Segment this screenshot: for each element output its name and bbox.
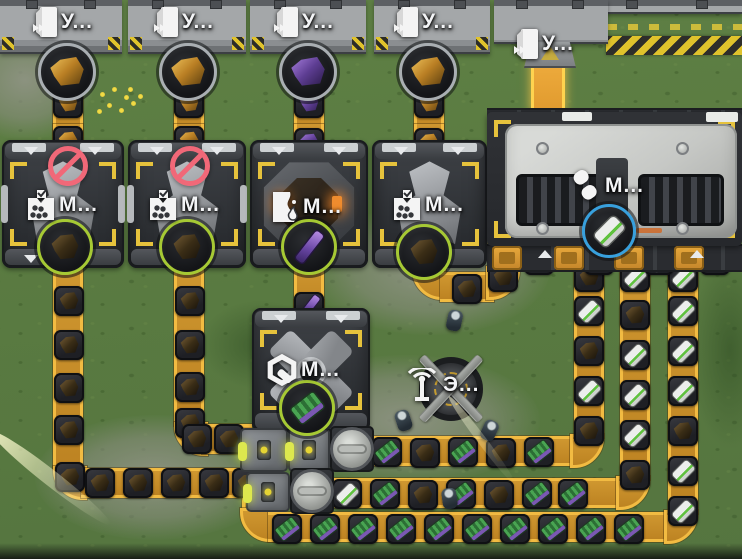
- circuit-board-icon: [426, 517, 451, 541]
- belt-item-tile[interactable]: [620, 340, 650, 370]
- port-marker: [562, 112, 592, 121]
- belt-loader[interactable]: [492, 246, 522, 270]
- port-label-text: У...: [61, 10, 93, 34]
- machine-side-slot: [127, 185, 134, 223]
- hazard-mark: [2, 37, 14, 50]
- chevron-down-icon: [332, 147, 346, 155]
- hazard-mark: [130, 37, 142, 50]
- bolt: [536, 222, 549, 235]
- port-label-text: У...: [422, 10, 454, 34]
- wall-segment: [596, 0, 742, 14]
- dark-ore-icon: [408, 236, 440, 268]
- corner-accent: [343, 162, 360, 179]
- belt-item-tile[interactable]: [668, 336, 698, 366]
- belt-item-tile[interactable]: [500, 514, 530, 544]
- flower: [131, 101, 136, 106]
- belt-item-tile[interactable]: [161, 468, 191, 498]
- belt-item-tile[interactable]: [199, 468, 229, 498]
- port-ore-badge[interactable]: [159, 43, 217, 101]
- chevron-down-icon: [210, 147, 224, 155]
- flower: [107, 103, 112, 108]
- corner-accent: [258, 229, 275, 246]
- belt-item-tile[interactable]: [524, 437, 554, 467]
- machine-label[interactable]: М...: [568, 170, 644, 202]
- belt-item-tile[interactable]: [620, 380, 650, 410]
- hazard-mark: [352, 37, 364, 50]
- corner-accent: [10, 229, 27, 246]
- battery-icon: [623, 343, 647, 367]
- chevron-down-icon: [394, 147, 408, 155]
- belt-item-tile[interactable]: [408, 480, 438, 510]
- flower: [138, 94, 143, 99]
- belt-item-tile[interactable]: [54, 415, 84, 445]
- belt-item-tile[interactable]: [668, 416, 698, 446]
- machine-label[interactable]: М...: [392, 188, 464, 222]
- battery-icon: [671, 459, 695, 483]
- dark-ore-icon: [456, 278, 478, 300]
- circuit-board-icon: [388, 517, 413, 541]
- device-light: [265, 489, 272, 496]
- port-label[interactable]: У...: [513, 28, 574, 60]
- corner-accent: [380, 162, 397, 179]
- belt-loader[interactable]: [554, 246, 584, 270]
- belt-item-tile[interactable]: [538, 514, 568, 544]
- machine-side-slot: [240, 185, 247, 223]
- port-label[interactable]: У...: [393, 6, 454, 38]
- circuit-board-icon: [560, 482, 585, 506]
- machine-label[interactable]: М...: [26, 188, 98, 222]
- hazard-mark: [232, 37, 244, 50]
- assembler-icon: [266, 354, 298, 386]
- belt-item-tile[interactable]: [486, 438, 516, 468]
- chevron-down-icon: [150, 147, 164, 155]
- flower: [97, 109, 102, 114]
- machine-side-slot: [1, 185, 8, 223]
- belt-item-tile[interactable]: [576, 514, 606, 544]
- flower: [124, 95, 129, 100]
- container-arrow-icon: [393, 6, 419, 38]
- chevron-down-icon: [272, 147, 286, 155]
- hazard-mark: [476, 37, 488, 50]
- dark-ore-icon: [127, 472, 149, 494]
- machine-label-text: М...: [303, 195, 342, 219]
- chevron-down-icon: [88, 147, 102, 155]
- port-label[interactable]: У...: [273, 6, 334, 38]
- corner-accent: [462, 229, 479, 246]
- belt-item-tile[interactable]: [175, 286, 205, 316]
- purple-ore-icon: [289, 55, 327, 89]
- circuit-board-icon: [374, 440, 399, 464]
- belt-item-tile[interactable]: [424, 514, 454, 544]
- chevron-up-icon: [690, 250, 704, 258]
- flower: [100, 92, 105, 97]
- corner-accent: [345, 330, 362, 347]
- corner-accent: [380, 229, 397, 246]
- machine-output-badge[interactable]: [396, 224, 452, 280]
- belt-item-tile[interactable]: [614, 514, 644, 544]
- wall-pillar: [696, 0, 708, 9]
- belt-item-tile[interactable]: [558, 479, 588, 509]
- corner-accent: [136, 229, 153, 246]
- wall-pillar: [572, 0, 584, 9]
- port-ore-badge[interactable]: [279, 43, 337, 101]
- device-light: [306, 447, 313, 454]
- wall-pillar: [454, 0, 466, 9]
- rotary-device[interactable]: [330, 426, 374, 472]
- belt-item-tile[interactable]: [574, 376, 604, 406]
- port-label-text: У...: [182, 10, 214, 34]
- battery-icon: [671, 499, 695, 523]
- corner-accent: [258, 162, 275, 179]
- machine-label-text: М...: [59, 193, 98, 217]
- belt-item-tile[interactable]: [620, 420, 650, 450]
- dark-ore-icon: [179, 376, 201, 398]
- belt-item-tile[interactable]: [620, 460, 650, 490]
- battery-icon: [671, 379, 695, 403]
- port-label[interactable]: У...: [153, 6, 214, 38]
- glow-slot: [238, 442, 247, 461]
- belt-item-tile[interactable]: [55, 462, 85, 492]
- dark-ore-icon: [624, 464, 646, 486]
- port-label[interactable]: У...: [32, 6, 93, 38]
- dark-ore-icon: [59, 466, 81, 488]
- corner-accent: [10, 162, 27, 179]
- power-pole-label-text: Э...: [443, 373, 479, 397]
- belt-item-tile[interactable]: [182, 424, 212, 454]
- mill-marking: [636, 228, 662, 233]
- dark-ore-icon: [58, 290, 80, 312]
- circuit-board-icon: [578, 517, 603, 541]
- belt-item-tile[interactable]: [310, 514, 340, 544]
- dark-ore-icon: [578, 420, 600, 442]
- belt-item-tile[interactable]: [54, 286, 84, 316]
- belt-item-tile[interactable]: [54, 373, 84, 403]
- no-power-icon: [170, 146, 210, 186]
- purple-rod-icon: [294, 230, 323, 263]
- no-power-icon: [48, 146, 88, 186]
- corner-accent: [99, 162, 116, 179]
- splitter-device[interactable]: [240, 428, 288, 472]
- circuit-board-icon: [526, 440, 551, 464]
- flower: [119, 108, 124, 113]
- glow-slot: [285, 442, 294, 461]
- belt-item-tile[interactable]: [484, 480, 514, 510]
- belt-item-tile[interactable]: [332, 479, 362, 509]
- corner-accent: [260, 393, 277, 410]
- dark-ore-icon: [58, 334, 80, 356]
- dark-ore-icon: [58, 419, 80, 441]
- belt-item-tile[interactable]: [348, 514, 378, 544]
- hazard-mark: [252, 37, 264, 50]
- glow-slot: [243, 484, 252, 503]
- dark-ore-icon: [488, 484, 510, 506]
- corner-accent: [99, 229, 116, 246]
- circuit-board-icon: [464, 517, 489, 541]
- flower: [128, 87, 133, 92]
- dark-ore-icon: [218, 428, 240, 450]
- belt-item-tile[interactable]: [175, 372, 205, 402]
- roller-conveyor: [638, 174, 724, 226]
- battery-icon: [577, 379, 601, 403]
- belt-item-tile[interactable]: [54, 330, 84, 360]
- dark-ore-icon: [179, 334, 201, 356]
- hazard-stripe-band: [606, 36, 742, 55]
- belt-item-tile[interactable]: [620, 300, 650, 330]
- dark-ore-icon: [49, 231, 81, 263]
- chevron-down-icon: [334, 315, 348, 323]
- battery-icon: [671, 339, 695, 363]
- corner-accent: [136, 162, 153, 179]
- belt-item-tile[interactable]: [522, 479, 552, 509]
- belt-item-tile[interactable]: [123, 468, 153, 498]
- chevron-down-icon: [274, 315, 288, 323]
- dark-ore-icon: [179, 290, 201, 312]
- crusher-icon: [392, 188, 422, 222]
- circuit-board-icon: [502, 517, 527, 541]
- bolt: [676, 222, 689, 235]
- dark-ore-icon: [171, 231, 203, 263]
- dark-ore-icon: [89, 472, 111, 494]
- machine-label-text: М...: [605, 174, 644, 198]
- rollers-icon: [568, 170, 602, 202]
- dark-ore-icon: [578, 340, 600, 362]
- dashed-marking: [586, 24, 742, 30]
- circuit-board-icon: [540, 517, 565, 541]
- wall-pillar: [516, 0, 528, 9]
- battery-icon: [671, 299, 695, 323]
- smelter-icon: [270, 190, 300, 224]
- splitter-device[interactable]: [246, 472, 290, 512]
- corner-accent: [221, 229, 238, 246]
- gold-ore-icon: [409, 55, 447, 89]
- worker-unit[interactable]: [441, 487, 459, 510]
- dark-ore-icon: [490, 442, 512, 464]
- battery-icon: [623, 423, 647, 447]
- gold-ore-icon: [48, 55, 86, 89]
- corner-accent: [221, 162, 238, 179]
- dark-ore-icon: [186, 428, 208, 450]
- belt-item-tile[interactable]: [370, 479, 400, 509]
- dark-ore-icon: [412, 484, 434, 506]
- power-pole-label[interactable]: Э...: [404, 368, 479, 402]
- hazard-mark: [108, 37, 120, 50]
- machine-label[interactable]: М...: [270, 190, 342, 224]
- circuit-board-icon: [274, 517, 299, 541]
- bolt: [676, 142, 689, 155]
- gold-ore-icon: [169, 55, 207, 89]
- circuit-board-icon: [524, 482, 549, 506]
- belt-item-tile[interactable]: [272, 514, 302, 544]
- container-arrow-icon: [32, 6, 58, 38]
- dark-ore-icon: [165, 472, 187, 494]
- belt-item-tile[interactable]: [448, 437, 478, 467]
- hazard-mark: [376, 37, 388, 50]
- machine-label-text: М...: [425, 193, 464, 217]
- belt-item-tile[interactable]: [452, 274, 482, 304]
- dark-ore-icon: [414, 442, 436, 464]
- dark-ore-icon: [624, 304, 646, 326]
- machine-output-badge[interactable]: [279, 380, 335, 436]
- port-ore-badge[interactable]: [38, 43, 96, 101]
- machine-output-badge[interactable]: [159, 219, 215, 275]
- circuit-board-icon: [372, 482, 397, 506]
- screen-vignette: [0, 543, 742, 559]
- crusher-icon: [148, 188, 178, 222]
- chevron-down-icon: [24, 255, 38, 263]
- circuit-board-icon: [350, 517, 375, 541]
- antenna-icon: [404, 368, 440, 402]
- chevron-down-icon: [451, 147, 465, 155]
- belt-item-tile[interactable]: [175, 330, 205, 360]
- machine-label[interactable]: М...: [148, 188, 220, 222]
- flower: [112, 87, 117, 92]
- container-arrow-icon: [273, 6, 299, 38]
- machine-output-badge[interactable]: [37, 219, 93, 275]
- crusher-icon: [26, 188, 56, 222]
- chevron-down-icon: [24, 147, 38, 155]
- dark-ore-icon: [203, 472, 225, 494]
- belt-item-tile[interactable]: [668, 296, 698, 326]
- machine-side-slot: [118, 185, 125, 223]
- wall-pillar: [626, 0, 638, 9]
- circuit-board-icon: [450, 440, 475, 464]
- belt-item-tile[interactable]: [668, 456, 698, 486]
- battery-icon: [623, 383, 647, 407]
- game-viewport: У... У... У... У... У...: [0, 0, 742, 559]
- corner-accent: [260, 330, 277, 347]
- belt-item-tile[interactable]: [574, 336, 604, 366]
- port-label-text: У...: [542, 32, 574, 56]
- belt-item-tile[interactable]: [386, 514, 416, 544]
- belt-item-tile[interactable]: [574, 416, 604, 446]
- battery-icon: [577, 299, 601, 323]
- circuit-board-icon: [616, 517, 641, 541]
- rotary-device[interactable]: [290, 468, 334, 514]
- circuit-board-icon: [312, 517, 337, 541]
- belt-item-tile[interactable]: [372, 437, 402, 467]
- battery-icon: [593, 215, 625, 247]
- circuit-board-icon: [290, 392, 324, 424]
- container-arrow-icon: [513, 28, 539, 60]
- belt-item-tile[interactable]: [668, 496, 698, 526]
- belt-item-tile[interactable]: [668, 376, 698, 406]
- bolt: [536, 142, 549, 155]
- dark-ore-icon: [58, 377, 80, 399]
- machine-output-badge[interactable]: [582, 204, 636, 258]
- corner-accent: [462, 162, 479, 179]
- belt-item-tile[interactable]: [462, 514, 492, 544]
- corner-accent: [345, 393, 362, 410]
- machine-label-text: М...: [181, 193, 220, 217]
- belt-item-tile[interactable]: [85, 468, 115, 498]
- container-arrow-icon: [153, 6, 179, 38]
- machine-label-text: М...: [301, 358, 340, 382]
- belt-item-tile[interactable]: [574, 296, 604, 326]
- belt-item-tile[interactable]: [410, 438, 440, 468]
- device-light: [261, 447, 268, 454]
- corner-accent: [343, 229, 360, 246]
- chevron-up-icon: [538, 250, 552, 258]
- battery-icon: [335, 482, 359, 506]
- machine-label[interactable]: М...: [266, 354, 340, 386]
- dark-ore-icon: [672, 420, 694, 442]
- port-label-text: У...: [302, 10, 334, 34]
- machine-output-badge[interactable]: [281, 219, 337, 275]
- port-marker: [706, 112, 738, 122]
- port-ore-badge[interactable]: [399, 43, 457, 101]
